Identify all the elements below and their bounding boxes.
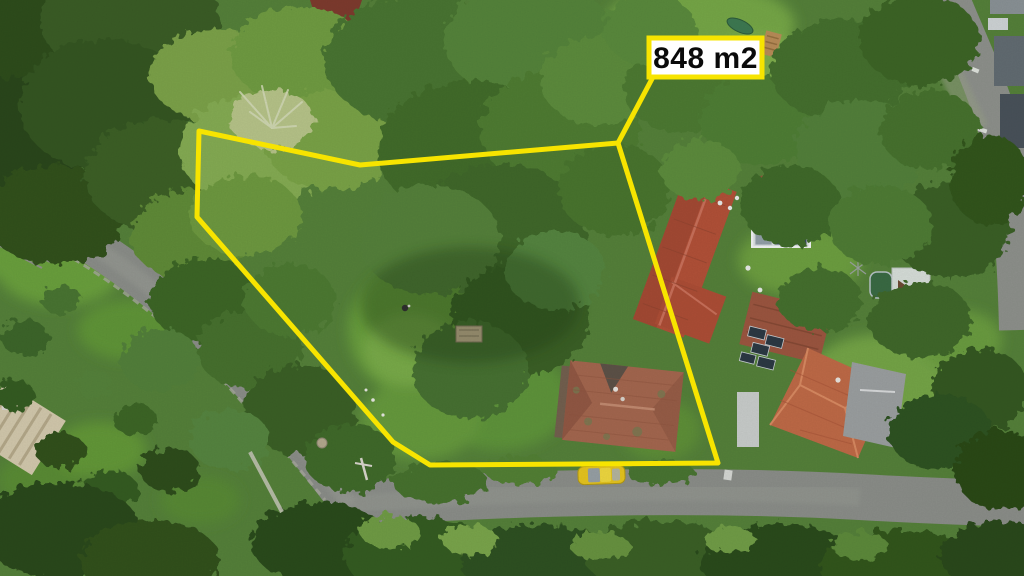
area-label: 848 m2 (649, 38, 762, 77)
photo-grain (0, 0, 1024, 576)
aerial-photo-canvas: 848 m2 (0, 0, 1024, 576)
aerial-photo: 848 m2 (0, 0, 1024, 576)
area-label-text: 848 m2 (653, 42, 758, 75)
